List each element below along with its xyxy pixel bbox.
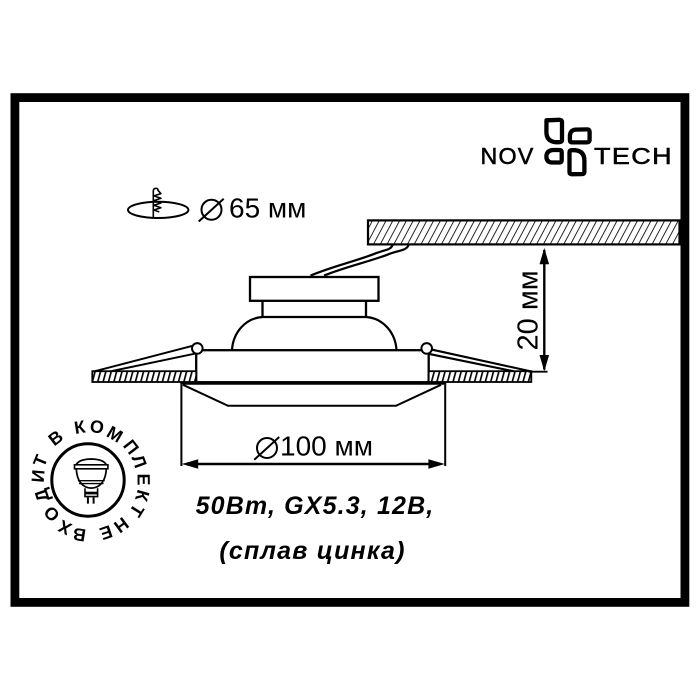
svg-text:(сплав цинка): (сплав цинка) bbox=[219, 537, 405, 565]
svg-text:И: И bbox=[28, 469, 49, 483]
svg-text:NOV: NOV bbox=[481, 143, 535, 169]
svg-text:20 мм: 20 мм bbox=[512, 270, 544, 350]
svg-text:65 мм: 65 мм bbox=[229, 193, 306, 224]
svg-text:100 мм: 100 мм bbox=[280, 431, 373, 462]
svg-text:50Вт, GX5.3, 12В,: 50Вт, GX5.3, 12В, bbox=[196, 492, 435, 520]
svg-text:TECH: TECH bbox=[594, 143, 673, 169]
svg-text:Е: Е bbox=[133, 473, 153, 485]
